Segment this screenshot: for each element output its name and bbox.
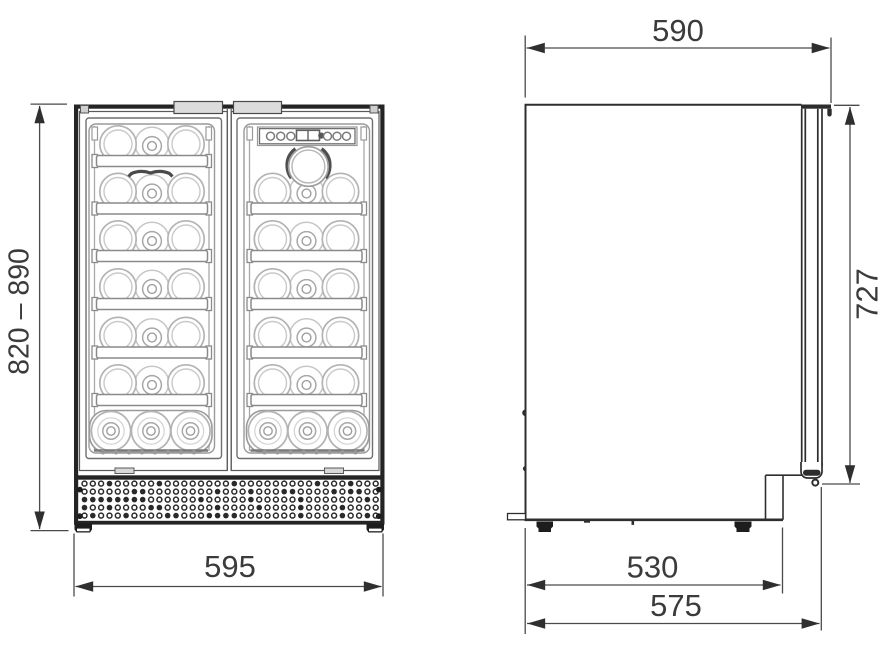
svg-text:530: 530 bbox=[627, 550, 679, 585]
svg-text:820 – 890: 820 – 890 bbox=[4, 248, 36, 375]
svg-text:595: 595 bbox=[204, 549, 256, 584]
svg-text:575: 575 bbox=[650, 588, 702, 623]
svg-text:590: 590 bbox=[652, 13, 704, 48]
svg-text:727: 727 bbox=[850, 268, 885, 320]
